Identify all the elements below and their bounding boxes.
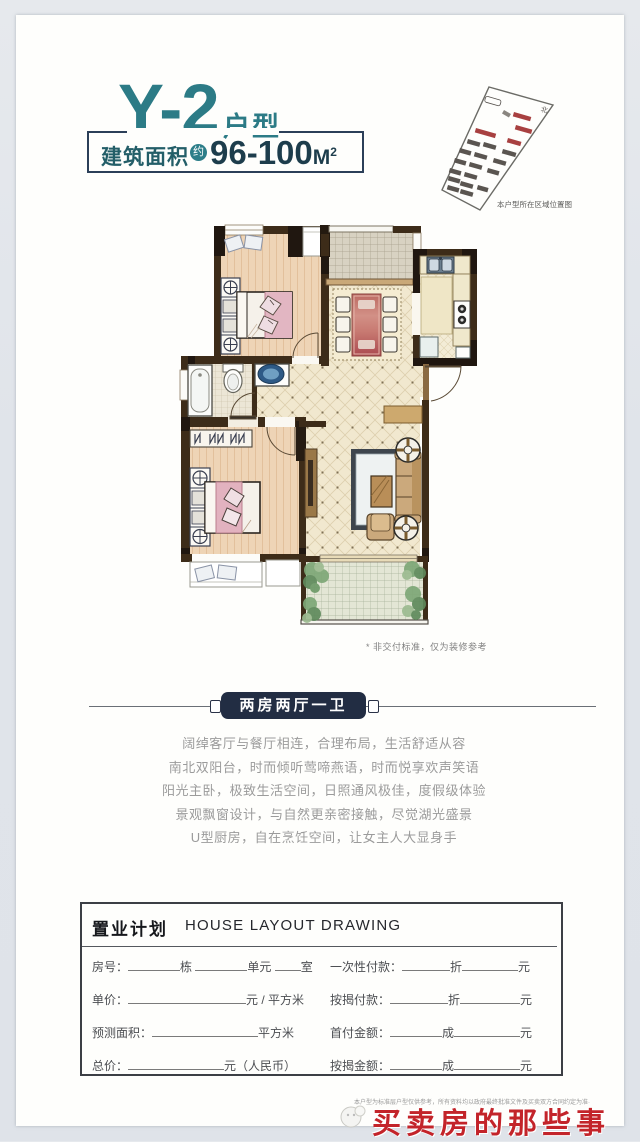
svg-text:本户型所在区域位置图: 本户型所在区域位置图	[497, 199, 572, 209]
